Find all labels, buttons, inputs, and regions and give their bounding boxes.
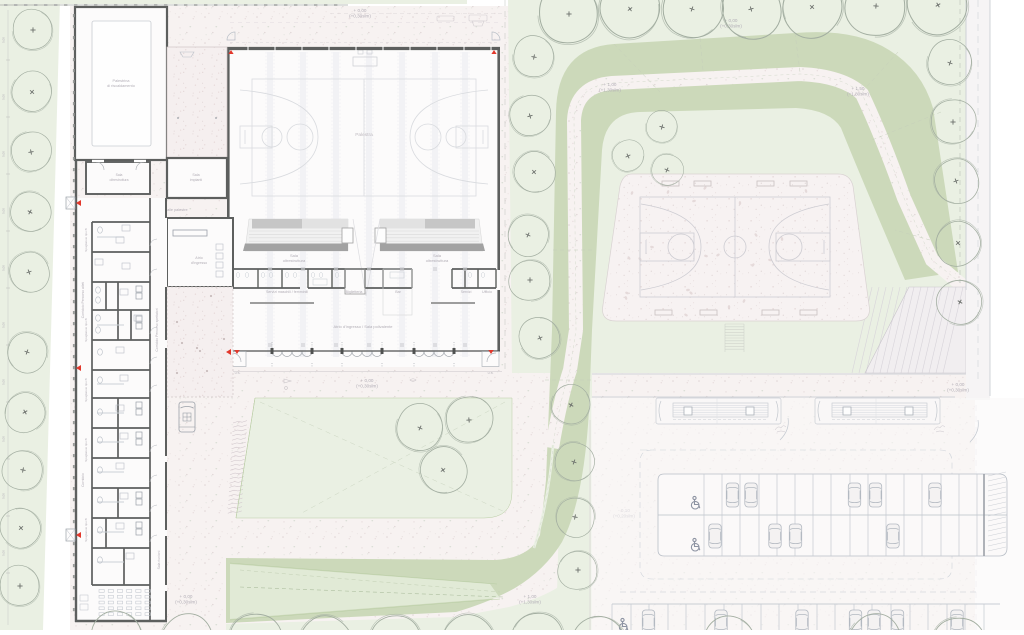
svg-text:Spogliatoio tipo B: Spogliatoio tipo B — [84, 378, 88, 401]
svg-text:Spogliatoio tipo B: Spogliatoio tipo B — [84, 518, 88, 541]
svg-text:(+0,30slm): (+0,30slm) — [175, 599, 197, 604]
svg-text:(+1,30slm): (+1,30slm) — [599, 87, 621, 92]
svg-text:Ufficio: Ufficio — [482, 290, 492, 294]
svg-text:+ 0,00: + 0,00 — [354, 8, 367, 13]
svg-text:(+0,30slm): (+0,30slm) — [349, 13, 371, 18]
svg-text:Spogliatoio tipo B: Spogliatoio tipo B — [84, 438, 88, 461]
svg-text:Sala: Sala — [192, 173, 199, 177]
svg-text:Palestra: Palestra — [355, 132, 373, 138]
svg-text:(+0,30slm): (+0,30slm) — [947, 387, 969, 392]
svg-text:Corridoio Percorso spettator: Corridoio Percorso spettatori — [155, 308, 159, 351]
svg-text:5,00: 5,00 — [2, 208, 6, 214]
svg-text:Biglietteria: Biglietteria — [346, 290, 363, 294]
svg-text:Sala: Sala — [116, 173, 123, 177]
svg-text:oltrestruttura: oltrestruttura — [283, 258, 306, 263]
svg-text:5,00: 5,00 — [2, 94, 6, 100]
svg-text:+ 0,00: + 0,00 — [361, 378, 374, 383]
svg-text:Servizi: Servizi — [461, 290, 472, 294]
svg-text:(+1,80slm): (+1,80slm) — [847, 91, 869, 96]
svg-text:U.S.: U.S. — [235, 371, 241, 375]
svg-text:+ 1,50: + 1,50 — [852, 86, 865, 91]
svg-text:(+1,30slm): (+1,30slm) — [519, 599, 541, 604]
svg-text:+ 1,00: + 1,00 — [604, 82, 617, 87]
svg-text:Palestrina: Palestrina — [113, 79, 131, 83]
svg-text:impianti: impianti — [190, 178, 203, 182]
svg-text:Atrio: Atrio — [195, 256, 202, 260]
svg-text:di riscaldamento: di riscaldamento — [107, 84, 135, 88]
svg-text:+ 0,00: + 0,00 — [725, 18, 738, 23]
svg-text:Spogliatoio tipo B: Spogliatoio tipo B — [84, 228, 88, 251]
svg-text:5,00: 5,00 — [2, 265, 6, 271]
svg-text:+ 0,00: + 0,00 — [180, 594, 193, 599]
svg-text:+ 1,00: + 1,00 — [524, 594, 537, 599]
svg-text:U.S.: U.S. — [488, 371, 494, 375]
svg-text:Sala riunioni: Sala riunioni — [157, 550, 161, 569]
svg-text:5,00: 5,00 — [2, 37, 6, 43]
svg-text:oltrestruttura: oltrestruttura — [109, 178, 128, 182]
svg-text:5,00: 5,00 — [2, 379, 6, 385]
svg-text:(+0,30slm): (+0,30slm) — [720, 23, 742, 28]
svg-text:5,00: 5,00 — [2, 550, 6, 556]
svg-text:Atrio d'ingresso / Sala poliva: Atrio d'ingresso / Sala polivalente — [333, 324, 393, 329]
svg-text:oltrestruttura: oltrestruttura — [426, 258, 449, 263]
svg-text:+ 0,00: + 0,00 — [952, 382, 965, 387]
svg-text:Corridoio Percorso atleti: Corridoio Percorso atleti — [81, 282, 85, 319]
svg-text:5,00: 5,00 — [2, 436, 6, 442]
svg-text:5,00: 5,00 — [2, 322, 6, 328]
svg-text:(+0,30slm): (+0,30slm) — [356, 383, 378, 388]
svg-text:Corridoio: Corridoio — [81, 473, 85, 487]
svg-text:Servizi maschili / femminili: Servizi maschili / femminili — [266, 290, 308, 294]
svg-text:d'ingresso: d'ingresso — [191, 261, 207, 265]
svg-text:5,00: 5,00 — [2, 151, 6, 157]
svg-text:Spogliatoio tipo B: Spogliatoio tipo B — [84, 318, 88, 341]
svg-text:5,00: 5,00 — [2, 493, 6, 499]
svg-text:Bar: Bar — [395, 290, 401, 294]
